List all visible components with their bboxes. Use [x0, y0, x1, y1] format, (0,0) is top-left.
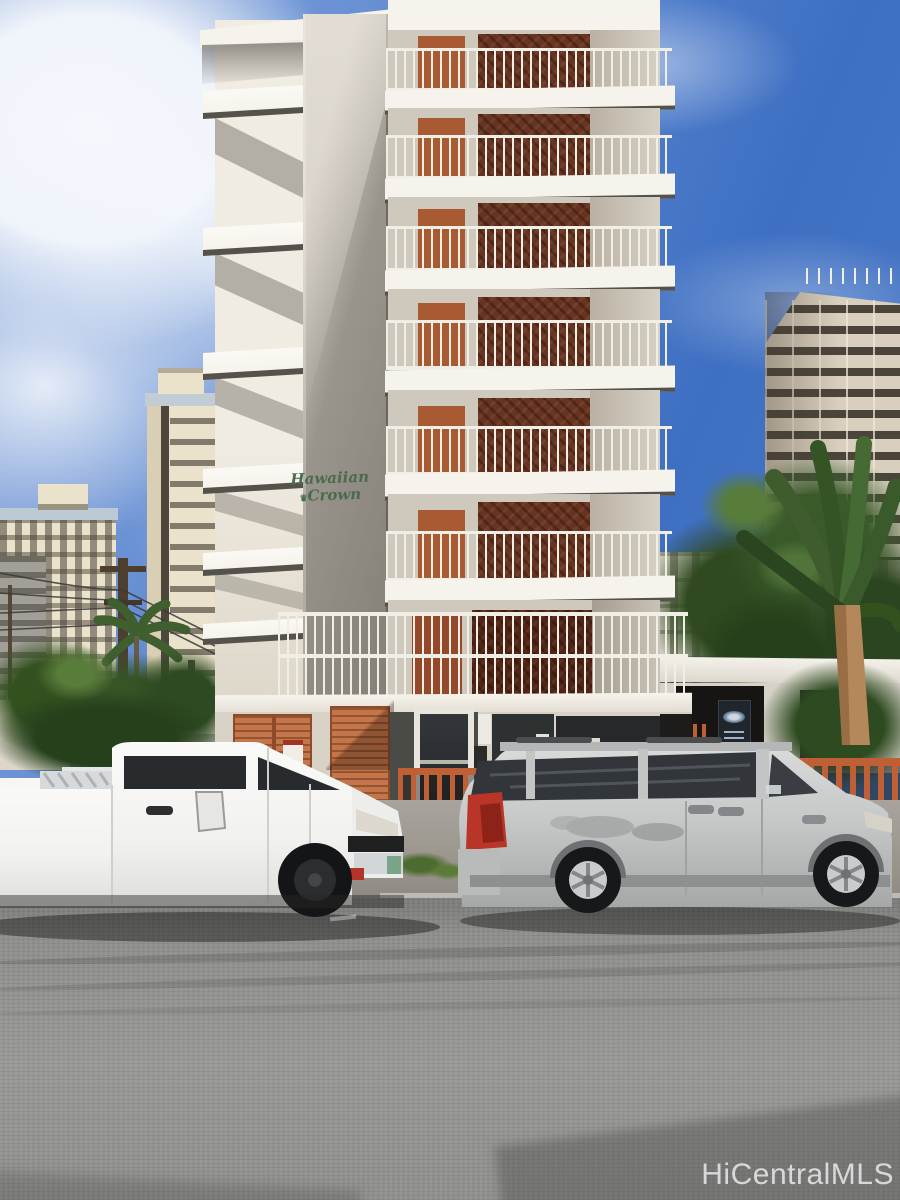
watermark: HiCentralMLS [701, 1158, 894, 1192]
background-tower-penthouse [38, 484, 88, 510]
background-tower-cream-right-roof [145, 393, 219, 406]
balcony-railing [386, 135, 672, 180]
van-window-sticker [766, 785, 781, 794]
building-name-line2: Crown [307, 485, 361, 505]
truck-rocker-shadow [0, 895, 404, 908]
background-tower-cream-right-penthouse [158, 368, 204, 394]
van-taillight-inner [480, 803, 504, 843]
van-dent [550, 816, 586, 830]
white-pickup-truck [0, 735, 470, 945]
balcony-railing [386, 320, 672, 370]
truck-bumper-trim [348, 836, 404, 852]
van-shadow [460, 907, 900, 935]
van-door-handle [718, 807, 744, 816]
van-rear-bumper [458, 849, 500, 895]
truck-mirror [196, 792, 225, 831]
main-building-facade [388, 0, 660, 714]
building-name-sign: Hawaiian ♛Crown [287, 469, 372, 506]
balcony-railing [386, 426, 672, 476]
balcony-railing [386, 226, 672, 272]
truck-side-window [124, 756, 246, 789]
truck-door-handle [146, 806, 173, 815]
van-roof-rail [516, 737, 592, 743]
truck-red-marker [350, 868, 364, 880]
facade-roof-band [388, 0, 660, 33]
background-tower-beige-rooftop-railing [806, 268, 900, 284]
van-front-door-handle [802, 815, 826, 824]
van-pillar [526, 751, 535, 799]
truck-shadow [0, 912, 440, 942]
van-dent [632, 823, 684, 841]
van-door-handle [688, 805, 714, 814]
truck-license-plate [387, 856, 401, 874]
van-roof-rail [646, 737, 722, 743]
tree-left-light [36, 646, 116, 701]
balcony-railing [386, 531, 672, 582]
watermark-text: HiCentralMLS [701, 1158, 894, 1191]
silver-minivan [450, 735, 900, 940]
second-floor-railing [278, 612, 688, 700]
van-pillar [638, 749, 648, 799]
listing-photo: Hawaiian ♛Crown [0, 0, 900, 1200]
